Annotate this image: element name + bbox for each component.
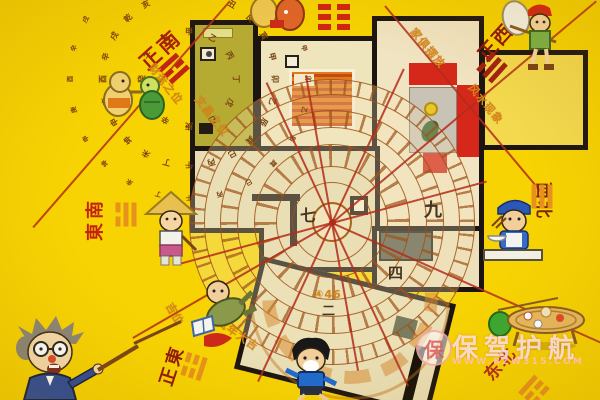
plan-numeral: 二	[322, 300, 335, 319]
trigram-southeast	[116, 203, 137, 227]
nightstand	[285, 55, 299, 68]
trigram-northeast	[518, 375, 550, 400]
plan-numeral: 九	[424, 196, 442, 222]
fengshui-floorplan-illustration: 子癸丑艮寅甲卯乙辰巽巳丙午丁未坤申庚酉辛戌乾亥壬 子癸丑艮寅甲卯乙辰巽巳丙午丁未…	[0, 0, 600, 400]
annotation-text: ④46	[314, 288, 342, 301]
hexagram-symbol	[318, 4, 350, 30]
cook-illustration	[482, 194, 548, 262]
plan-numeral: 七	[300, 202, 316, 226]
farmer-with-hat-illustration	[142, 188, 200, 268]
boy-with-net-illustration	[502, 0, 568, 78]
washer-icon	[200, 47, 216, 61]
tumbling-reader-illustration	[174, 274, 258, 358]
watermark-logo: 保	[416, 330, 452, 366]
running-boy-illustration	[278, 334, 344, 400]
plan-numeral: 四	[388, 262, 403, 283]
watermark-url: WWW.BZW315.COM	[452, 357, 584, 367]
direction-label-southeast: 東南	[81, 197, 107, 241]
professor-pointing-illustration	[10, 314, 140, 400]
cartoon-duo-left-illustration	[98, 62, 170, 120]
cartoon-duo-top-illustration	[246, 0, 310, 32]
